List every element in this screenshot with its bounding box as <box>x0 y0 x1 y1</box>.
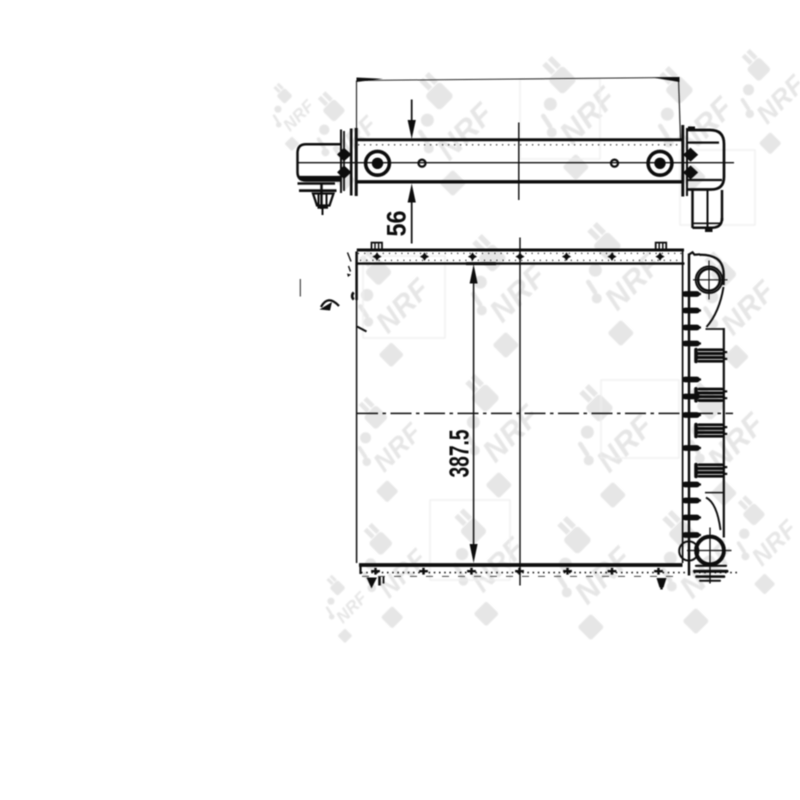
svg-text:387.5: 387.5 <box>444 430 475 478</box>
svg-text:56: 56 <box>382 211 412 237</box>
